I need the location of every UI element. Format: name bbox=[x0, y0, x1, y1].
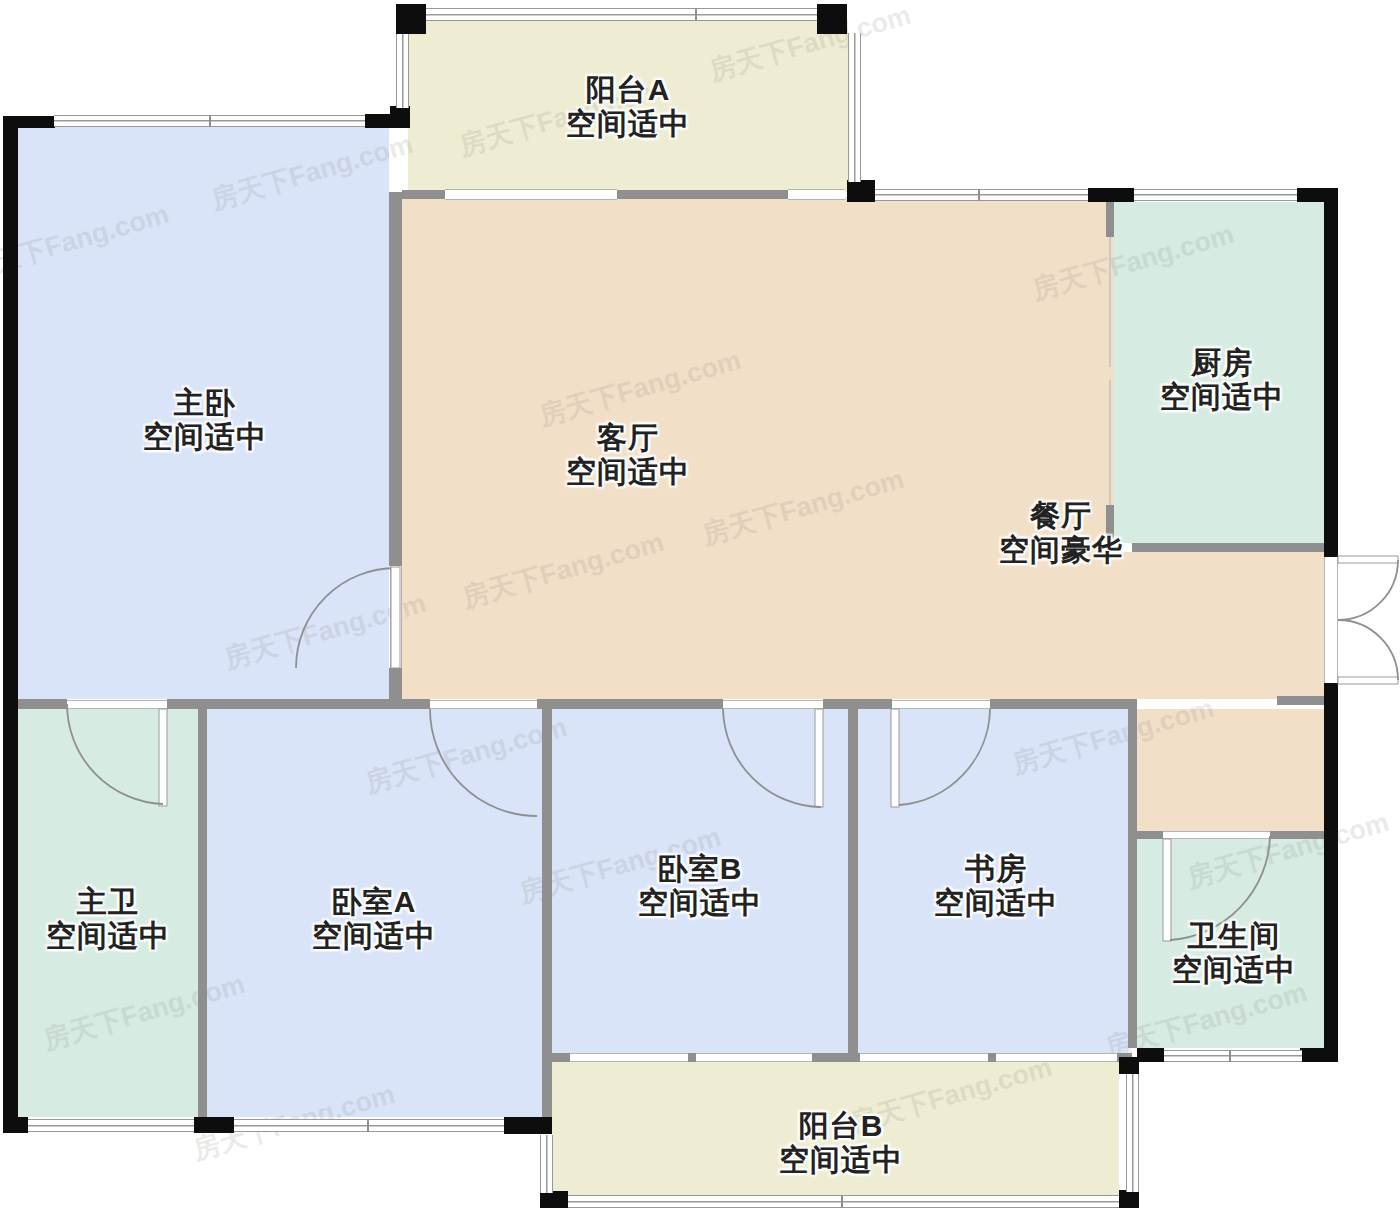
room-name: 卫生间 bbox=[1172, 919, 1296, 953]
room-label-dining-room: 餐厅 空间豪华 bbox=[999, 499, 1123, 567]
room-label-bedroom-b: 卧室B 空间适中 bbox=[638, 852, 762, 920]
window bbox=[1164, 1050, 1302, 1062]
window-mullion bbox=[209, 115, 211, 127]
room-size: 空间适中 bbox=[566, 107, 690, 141]
corner-post bbox=[1300, 1048, 1338, 1062]
door-threshold bbox=[723, 700, 823, 709]
corner-post bbox=[396, 4, 426, 34]
corner-post bbox=[390, 106, 410, 128]
window bbox=[396, 34, 409, 108]
balcony-slider bbox=[570, 1053, 688, 1062]
room-size: 空间适中 bbox=[46, 919, 170, 953]
window-mullion bbox=[695, 8, 697, 21]
room-name: 卧室A bbox=[312, 885, 436, 919]
room-name: 主卫 bbox=[46, 885, 170, 919]
room-label-master-bedroom: 主卧 空间适中 bbox=[143, 386, 267, 454]
room-label-living-room: 客厅 空间适中 bbox=[566, 421, 690, 489]
wall-segment bbox=[848, 709, 858, 1053]
room-label-bedroom-a: 卧室A 空间适中 bbox=[312, 885, 436, 953]
window-mullion bbox=[841, 1195, 843, 1208]
window bbox=[1134, 189, 1297, 201]
room-name: 阳台B bbox=[779, 1109, 903, 1143]
wall-segment bbox=[1132, 543, 1324, 552]
room-name: 客厅 bbox=[566, 421, 690, 455]
window-mullion bbox=[1229, 1050, 1231, 1062]
balcony-slider bbox=[860, 1053, 988, 1062]
room-name: 书房 bbox=[934, 852, 1058, 886]
wall-outer-right-upper bbox=[1324, 188, 1338, 557]
room-size: 空间适中 bbox=[779, 1143, 903, 1177]
corner-post bbox=[817, 4, 847, 34]
room-size: 空间适中 bbox=[312, 919, 436, 953]
room-size: 空间适中 bbox=[143, 420, 267, 454]
balcony-slider bbox=[445, 189, 617, 200]
room-name: 餐厅 bbox=[999, 499, 1123, 533]
wall-outer-right-lower bbox=[1324, 683, 1338, 1062]
corner-post bbox=[1119, 1057, 1139, 1074]
entry-door-opening bbox=[1324, 557, 1338, 683]
sliding-partition-line bbox=[1109, 380, 1111, 505]
room-size: 空间适中 bbox=[934, 886, 1058, 920]
room-size: 空间适中 bbox=[638, 886, 762, 920]
room-name: 卧室B bbox=[638, 852, 762, 886]
room-label-balcony-b: 阳台B 空间适中 bbox=[779, 1109, 903, 1177]
entry-door-arc bbox=[1338, 560, 1398, 620]
room-size: 空间适中 bbox=[1160, 380, 1284, 414]
window-mullion bbox=[978, 189, 980, 201]
window bbox=[848, 33, 861, 182]
room-size: 空间适中 bbox=[566, 455, 690, 489]
wall-segment bbox=[1270, 831, 1324, 839]
wall-segment bbox=[988, 1053, 996, 1062]
window bbox=[568, 1195, 1119, 1208]
door-threshold bbox=[892, 700, 990, 709]
balcony-slider bbox=[996, 1053, 1117, 1062]
window bbox=[875, 189, 1088, 201]
wall-segment bbox=[537, 699, 723, 709]
room-size: 空间豪华 bbox=[999, 533, 1123, 567]
room-size: 空间适中 bbox=[1172, 953, 1296, 987]
wall-segment bbox=[990, 699, 1137, 709]
corner-post bbox=[540, 1191, 568, 1208]
window bbox=[1126, 1074, 1139, 1192]
window bbox=[28, 1119, 194, 1132]
room-label-bathroom: 卫生间 空间适中 bbox=[1172, 919, 1296, 987]
wall-segment bbox=[402, 190, 445, 199]
corner-post bbox=[1088, 188, 1134, 202]
wall-segment bbox=[812, 1053, 860, 1062]
corner-post bbox=[3, 1117, 28, 1133]
window bbox=[426, 8, 817, 21]
corner-post bbox=[3, 116, 55, 128]
wall-segment bbox=[1137, 831, 1163, 839]
door-threshold bbox=[390, 566, 402, 668]
corner-post bbox=[194, 1117, 234, 1133]
window-mullion bbox=[367, 1119, 369, 1132]
room-floor-living-room bbox=[402, 197, 1114, 699]
corner-post bbox=[1137, 1048, 1164, 1062]
entry-door-leaf bbox=[1338, 677, 1398, 684]
corner-post bbox=[504, 1117, 552, 1134]
corner-post bbox=[1119, 1190, 1139, 1208]
room-name: 阳台A bbox=[566, 73, 690, 107]
sliding-partition-line bbox=[1109, 237, 1111, 367]
door-threshold bbox=[1163, 831, 1270, 839]
room-floor-dining-room bbox=[1114, 552, 1324, 699]
wall-segment bbox=[1277, 696, 1324, 705]
wall-segment bbox=[198, 709, 207, 1118]
wall-segment bbox=[17, 699, 67, 709]
wall-segment bbox=[548, 1053, 570, 1062]
wall-outer-left bbox=[3, 116, 18, 1133]
balcony-slider bbox=[788, 189, 845, 200]
room-name: 厨房 bbox=[1160, 346, 1284, 380]
floor-plan: 房天下Fang.com 房天下Fang.com 房天下Fang.com 房天下F… bbox=[0, 0, 1400, 1215]
room-name: 主卧 bbox=[143, 386, 267, 420]
window bbox=[234, 1119, 504, 1132]
wall-segment bbox=[823, 699, 892, 709]
wall-segment bbox=[1106, 197, 1114, 237]
door-threshold bbox=[430, 700, 537, 709]
room-label-kitchen: 厨房 空间适中 bbox=[1160, 346, 1284, 414]
wall-segment bbox=[167, 699, 430, 709]
balcony-slider bbox=[696, 1053, 812, 1062]
entry-door-leaf bbox=[1338, 556, 1398, 563]
entry-door-arc bbox=[1338, 620, 1398, 680]
room-label-study: 书房 空间适中 bbox=[934, 852, 1058, 920]
wall-segment bbox=[1128, 709, 1137, 1048]
wall-segment bbox=[617, 190, 788, 199]
room-label-balcony-a: 阳台A 空间适中 bbox=[566, 73, 690, 141]
door-threshold bbox=[67, 700, 167, 709]
corner-post bbox=[847, 180, 875, 202]
wall-segment bbox=[688, 1053, 696, 1062]
window bbox=[540, 1135, 553, 1193]
room-label-master-bath: 主卫 空间适中 bbox=[46, 885, 170, 953]
room-floor-hallway bbox=[1137, 709, 1324, 831]
wall-segment bbox=[389, 192, 402, 566]
